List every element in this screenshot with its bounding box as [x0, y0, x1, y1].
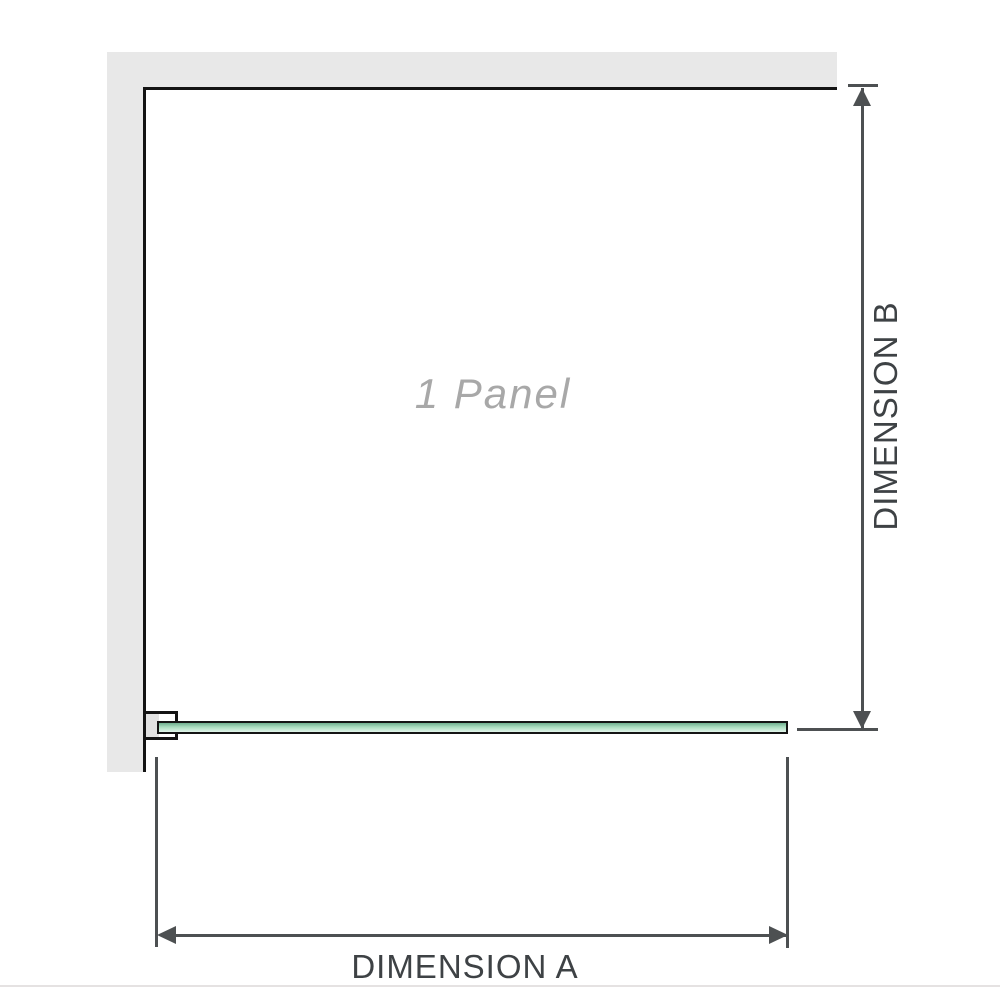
dimension-a-right-extension-line	[786, 757, 789, 948]
dimension-b-arrow-down-icon	[853, 711, 871, 729]
dimension-b-arrow-up-icon	[853, 88, 871, 106]
dimension-b-label: DIMENSION B	[866, 266, 906, 566]
panel-top-edge-line	[143, 87, 837, 90]
panel-count-label: 1 Panel	[143, 370, 843, 418]
dimension-b-line	[861, 88, 864, 728]
wall-top-strip	[107, 52, 837, 87]
dimension-a-line	[162, 934, 786, 937]
dimension-a-label: DIMENSION A	[265, 948, 665, 986]
page-bottom-border	[0, 985, 1000, 987]
dimension-a-arrow-right-icon	[769, 926, 788, 944]
panel-left-edge-line	[143, 87, 146, 772]
dimension-a-arrow-left-icon	[157, 926, 176, 944]
dimension-a-left-extension-line	[155, 757, 158, 947]
wall-left-strip	[107, 52, 143, 772]
dimension-b-top-tick	[848, 84, 878, 87]
shower-screen-diagram: 1 Panel DIMENSION B DIMENSION A	[0, 0, 1000, 1000]
glass-panel-bar	[157, 721, 788, 734]
